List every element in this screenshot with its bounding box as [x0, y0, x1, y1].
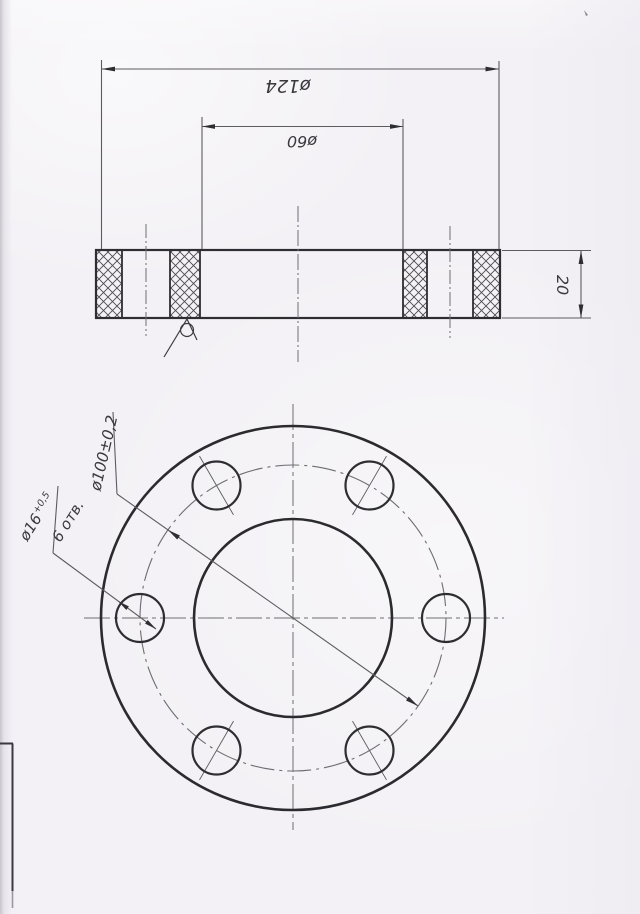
hole-note-diameter: ø16	[15, 510, 46, 544]
underlying-page-frame-corner	[0, 744, 13, 909]
hatch-left-inner	[170, 250, 200, 318]
dimension-text-od: ø124	[265, 75, 311, 96]
section-view	[96, 206, 500, 362]
dimension-arrow	[406, 697, 418, 707]
plan-view	[84, 404, 504, 830]
dimension-arrow	[202, 124, 215, 129]
dimension-arrow	[579, 305, 584, 319]
dimension-arrow	[486, 67, 500, 72]
surface-finish-icon	[164, 319, 197, 357]
hole-note-tolerance: +0,5	[31, 490, 53, 515]
dimension-bore-diameter: ø60	[202, 117, 403, 249]
dimension-arrow	[579, 251, 584, 265]
hole-note-count: 6 отв.	[48, 497, 88, 545]
dimension-arrow	[102, 67, 116, 72]
scan-speck	[584, 10, 588, 16]
dimension-arrow	[168, 530, 180, 540]
dimension-bolt-circle: ø100±0,2	[86, 412, 418, 706]
hatch-right-inner	[403, 250, 427, 318]
dimension-text-thickness: 20	[553, 275, 572, 295]
hatch-left-outer	[96, 250, 122, 318]
flange-technical-drawing: ø124 ø60 20	[0, 0, 640, 914]
dimension-arrow	[390, 124, 403, 129]
dimension-outer-diameter: ø124	[102, 60, 500, 249]
dimension-text-bore: ø60	[287, 132, 318, 151]
dimension-arrow	[145, 620, 156, 629]
hatch-right-outer	[473, 250, 500, 318]
dimension-line	[117, 494, 418, 706]
dimension-thickness: 20	[502, 251, 591, 319]
